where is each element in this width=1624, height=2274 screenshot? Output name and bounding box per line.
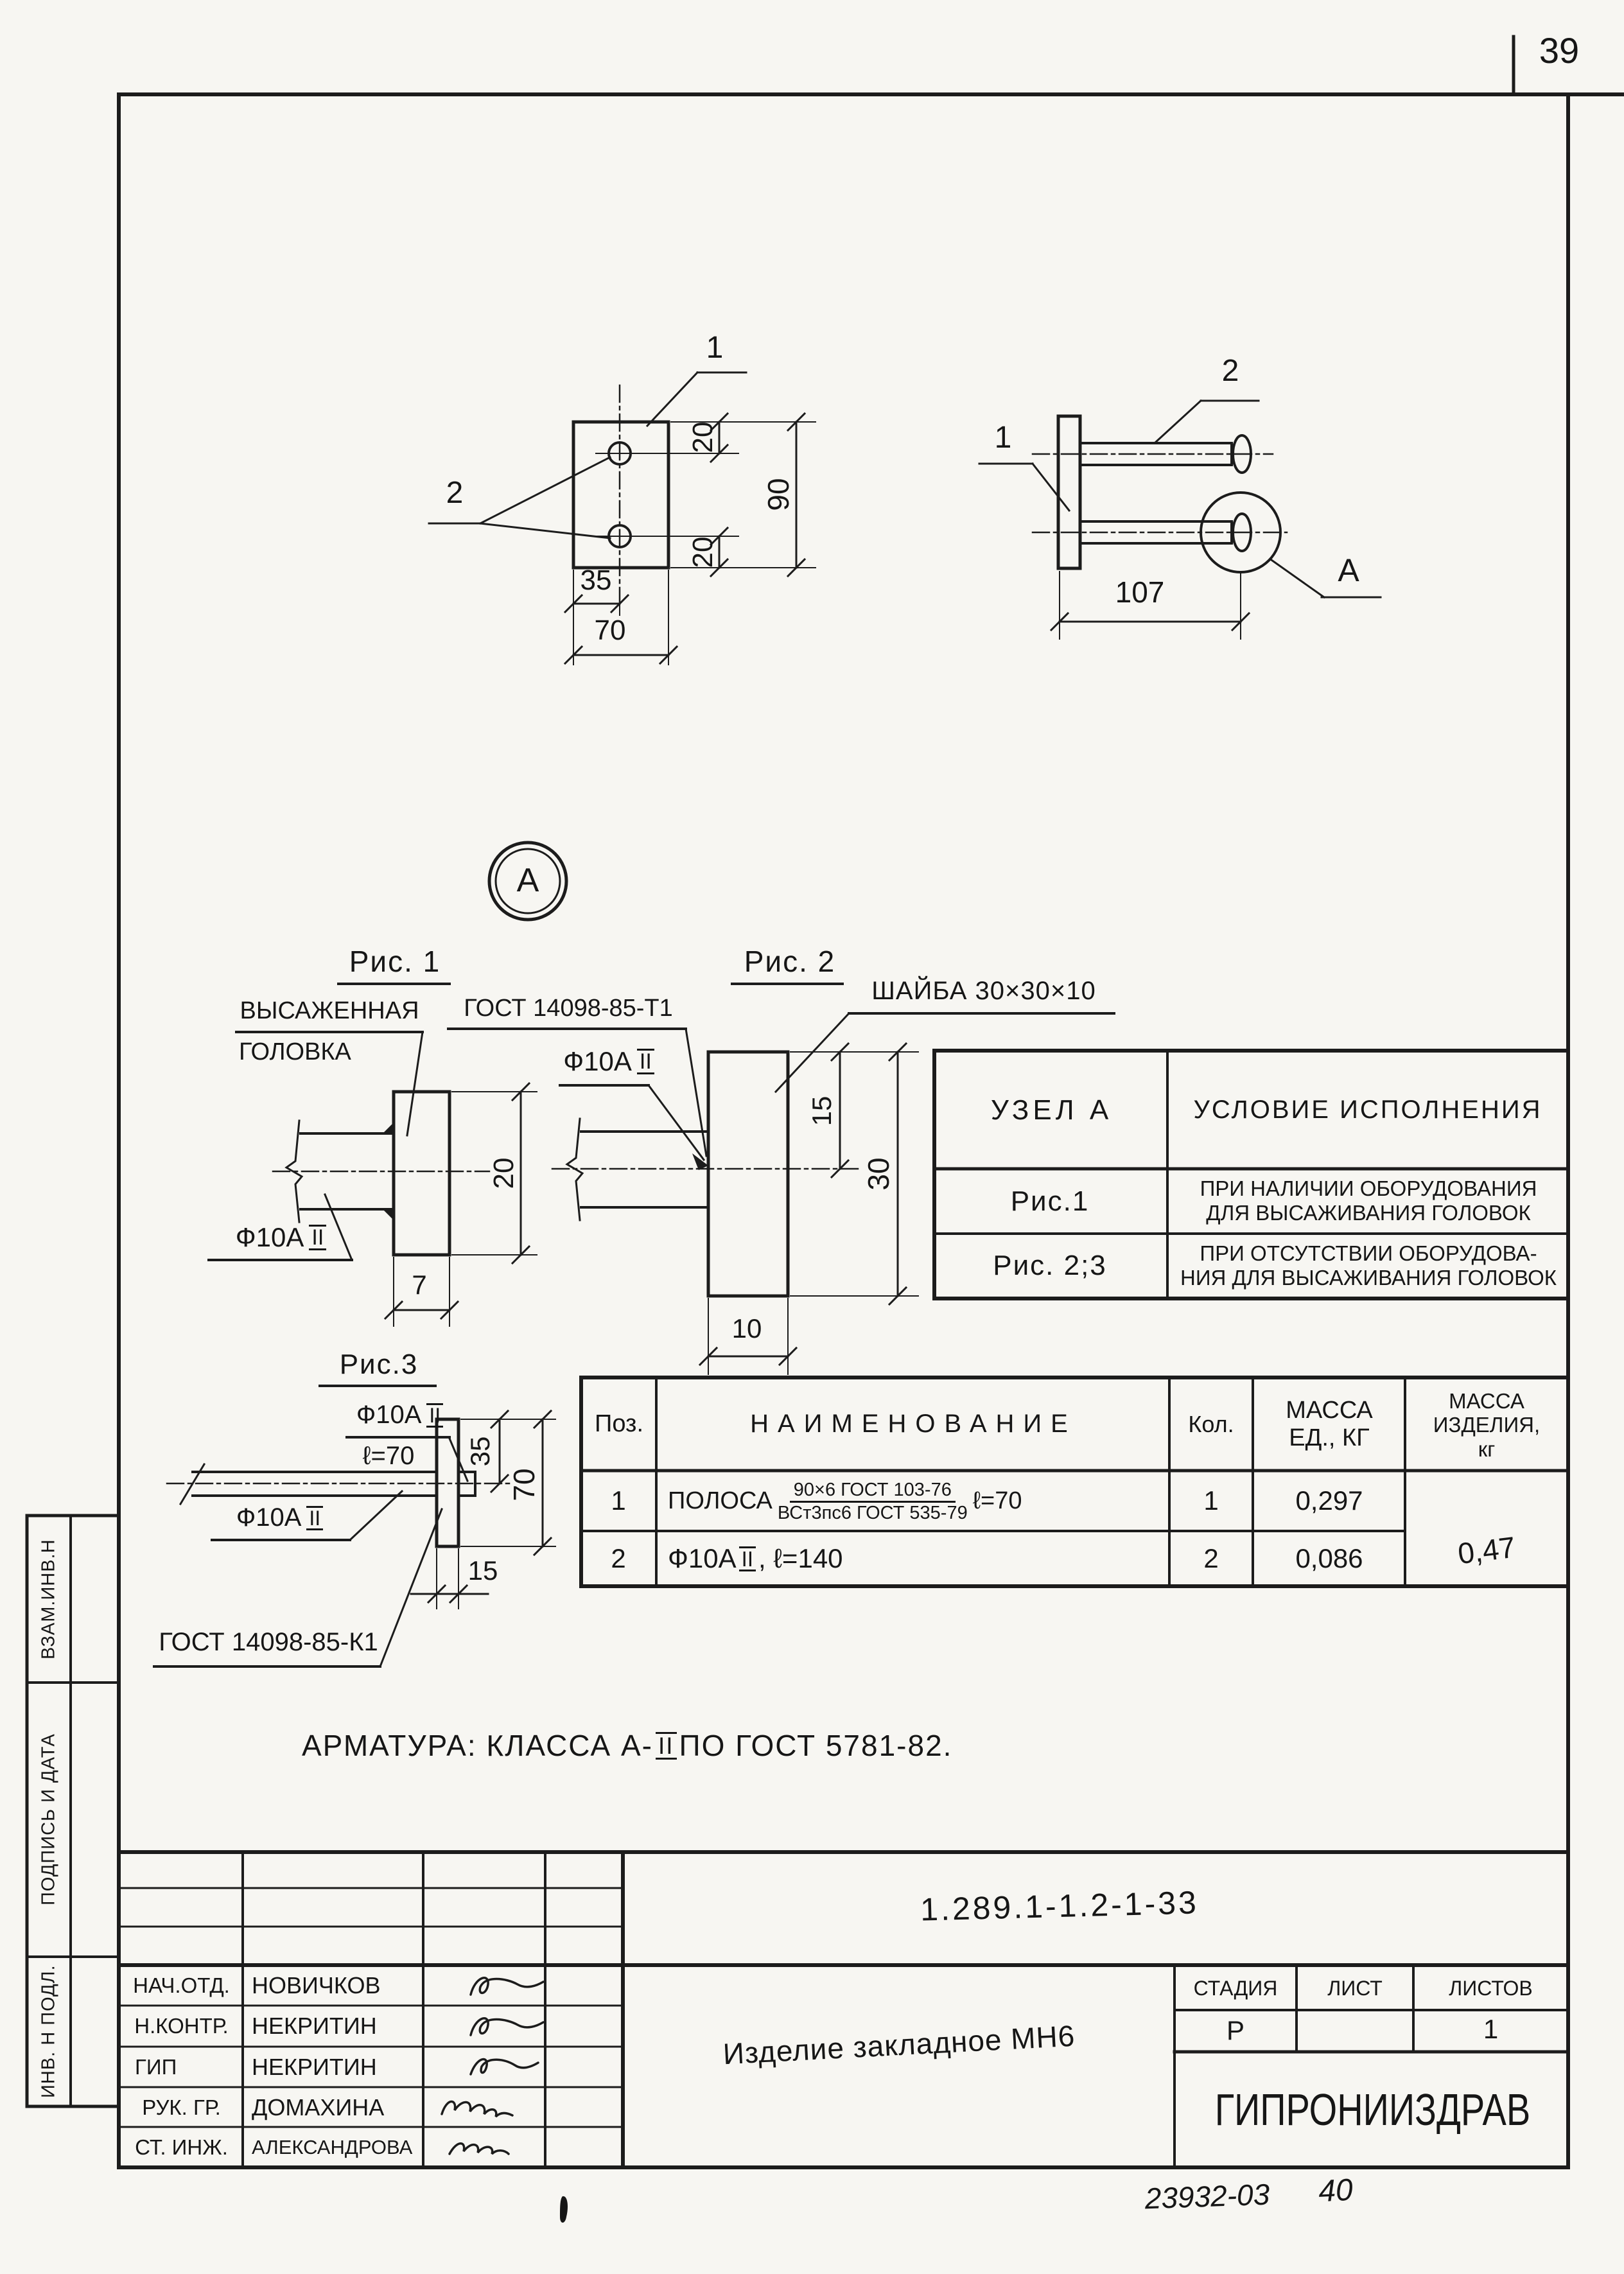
fig2-dim-15: 15 [803,1085,841,1137]
fig3-rebar-top-prefix: Ф10А [356,1401,422,1430]
strip-cell-podpis: ПОДПИСЬ И ДАТА [27,1683,71,1957]
fig2-dim-30: 30 [859,1148,898,1200]
parts-header-mass-unit: МАССА ЕД., КГ [1255,1392,1403,1456]
footer-code: 23932-03 [1117,2174,1298,2219]
parts-row2-qty: 2 [1189,1540,1234,1577]
front-dim-70: 70 [584,612,636,649]
parts-row2-name-suffix: , ℓ=140 [758,1543,843,1574]
parts-row1-name: ПОЛОСА 90×6 ГОСТ 103-76 ВСт3пс6 ГОСТ 535… [668,1474,1162,1528]
front-dim-20-top: 20 [684,412,722,463]
sheet-label: ЛИСТ [1299,1970,1411,2006]
fig3-title: Рис.3 [318,1346,440,1383]
strip-cell-vzam: ВЗАМ.ИНВ.Н [27,1516,71,1683]
front-pos2-label: 2 [432,474,477,512]
fig1-weld-gost-label: ГОСТ 14098-85-Т1 [450,993,687,1025]
front-pos1-label: 1 [692,329,737,367]
fig3-rebar-top-length: ℓ=70 [347,1440,430,1473]
sig-name-1: НОВИЧКОВ [252,1968,420,2004]
fig3-rebar-top-class: II [426,1403,443,1428]
parts-row1-mass: 0,297 [1284,1482,1374,1519]
fig1-lines [209,984,706,1326]
fig3-dim-35: 35 [461,1426,500,1477]
fig3-rebar-side-prefix: Ф10А [236,1503,302,1533]
signature-strokes [442,1978,568,2223]
parts-row1-qty: 1 [1189,1482,1234,1519]
side-detail-a-label: А [1326,550,1371,591]
fig3-weld-gost-label: ГОСТ 14098-85-К1 [153,1625,384,1661]
drawing-sheet: 39 1 2 20 20 90 35 70 2 1 А 107 А Рис. 1… [0,0,1624,2274]
stage-value: Р [1177,2013,1294,2049]
fig1-dim-7: 7 [397,1266,442,1304]
fig1-callout-lower: ГОЛОВКА [239,1036,425,1069]
sig-name-4: ДОМАХИНА [252,2090,420,2126]
node-table-row2-condition: ПРИ ОТСУТСТВИИ ОБОРУДОВА- НИЯ ДЛЯ ВЫСАЖИ… [1173,1238,1564,1294]
rebar-note-prefix: АРМАТУРА: КЛАССА А- [302,1729,653,1762]
rebar-note: АРМАТУРА: КЛАССА А-II ПО ГОСТ 5781-82. [302,1725,1137,1766]
rebar-note-suffix: ПО ГОСТ 5781-82. [679,1729,953,1762]
fig3-rebar-top-label: Ф10АII [347,1397,453,1433]
side-pos1-label: 1 [981,419,1026,457]
parts-row1-frac-top: 90×6 ГОСТ 103-76 [790,1480,956,1502]
front-dim-20-bottom: 20 [684,527,722,578]
fig2-washer-label: ШАЙБА 30×30×10 [849,975,1119,1008]
parts-row1-name-prefix: ПОЛОСА [668,1487,773,1515]
sig-name-2: НЕКРИТИН [252,2008,420,2044]
strip-cell-inv: ИНВ. Н ПОДЛ. [27,1957,71,2106]
parts-row1-pos: 1 [596,1482,641,1519]
sig-role-2: Н.КОНТР. [122,2008,241,2044]
parts-header-name: НАИМЕНОВАНИЕ [661,1406,1166,1442]
side-dim-107: 107 [1101,573,1178,611]
front-dim-35: 35 [570,562,622,599]
node-table-row2-node: Рис. 2;3 [957,1247,1143,1284]
fig2-title: Рис. 2 [729,943,851,980]
fig3-rebar-side-class: II [306,1506,323,1530]
organization-name: ГИПРОНИИЗДРАВ [1182,2081,1564,2138]
fig1-rebar-label: Ф10АII [212,1219,350,1256]
fig3-rebar-side-label: Ф10АII [211,1500,349,1536]
stage-label: СТАДИЯ [1177,1970,1294,2006]
fig2-rebar-prefix: Ф10А [563,1046,632,1077]
fig3-dim-15: 15 [457,1553,509,1589]
fig1-rebar-class: II [309,1225,326,1250]
footer-page: 40 [1297,2170,1375,2212]
parts-row1-name-fraction: 90×6 ГОСТ 103-76 ВСт3пс6 ГОСТ 535-79 [778,1480,968,1523]
parts-row2-mass: 0,086 [1284,1540,1374,1577]
sig-role-1: НАЧ.ОТД. [122,1968,241,2004]
side-pos2-label: 2 [1208,352,1253,390]
fig2-dim-10: 10 [721,1310,773,1347]
parts-row2-name-class: II [739,1546,756,1571]
parts-header-pos: Поз. [583,1406,655,1442]
sheet-number: 39 [1521,28,1598,73]
fig1-title: Рис. 1 [334,943,456,980]
node-table-row1-node: Рис.1 [957,1183,1143,1220]
parts-header-qty: Кол. [1171,1406,1251,1442]
sheets-total-value: 1 [1416,2011,1566,2047]
sig-role-5: СТ. ИНЖ. [122,2130,241,2165]
node-table-header-node: УЗЕЛ А [950,1092,1153,1129]
sig-name-3: НЕКРИТИН [252,2049,420,2085]
parts-header-mass-total: МАССА ИЗДЕЛИЯ, кг [1408,1384,1566,1466]
rebar-note-class: II [656,1732,677,1760]
parts-row1-name-suffix: ℓ=70 [973,1487,1022,1515]
parts-row2-pos: 2 [596,1540,641,1577]
parts-row1-frac-bottom: ВСт3пс6 ГОСТ 535-79 [778,1503,968,1523]
sig-role-4: РУК. ГР. [122,2090,241,2126]
node-table-header-condition: УСЛОВИЕ ИСПОЛНЕНИЯ [1182,1092,1554,1129]
parts-row2-name: Ф10АII, ℓ=140 [668,1540,1053,1577]
fig1-callout-upper: ВЫСАЖЕННАЯ [236,995,423,1028]
sig-role-3: ГИП [135,2049,241,2085]
fig3-dim-70: 70 [505,1459,543,1510]
parts-row2-name-prefix: Ф10А [668,1543,737,1574]
side-view-lines [979,401,1381,639]
fig2-rebar-label: Ф10АII [557,1043,660,1080]
sheets-label: ЛИСТОВ [1416,1970,1566,2006]
fig2-rebar-class: II [637,1049,654,1074]
detail-marker-a-label: А [505,859,550,903]
front-dim-90: 90 [759,469,798,520]
fig1-dim-20: 20 [485,1148,523,1199]
sig-name-5: АЛЕКСАНДРОВА [252,2130,424,2165]
node-table-row1-condition: ПРИ НАЛИЧИИ ОБОРУДОВАНИЯ ДЛЯ ВЫСАЖИВАНИЯ… [1173,1173,1564,1229]
fig1-rebar-prefix: Ф10А [236,1222,304,1253]
